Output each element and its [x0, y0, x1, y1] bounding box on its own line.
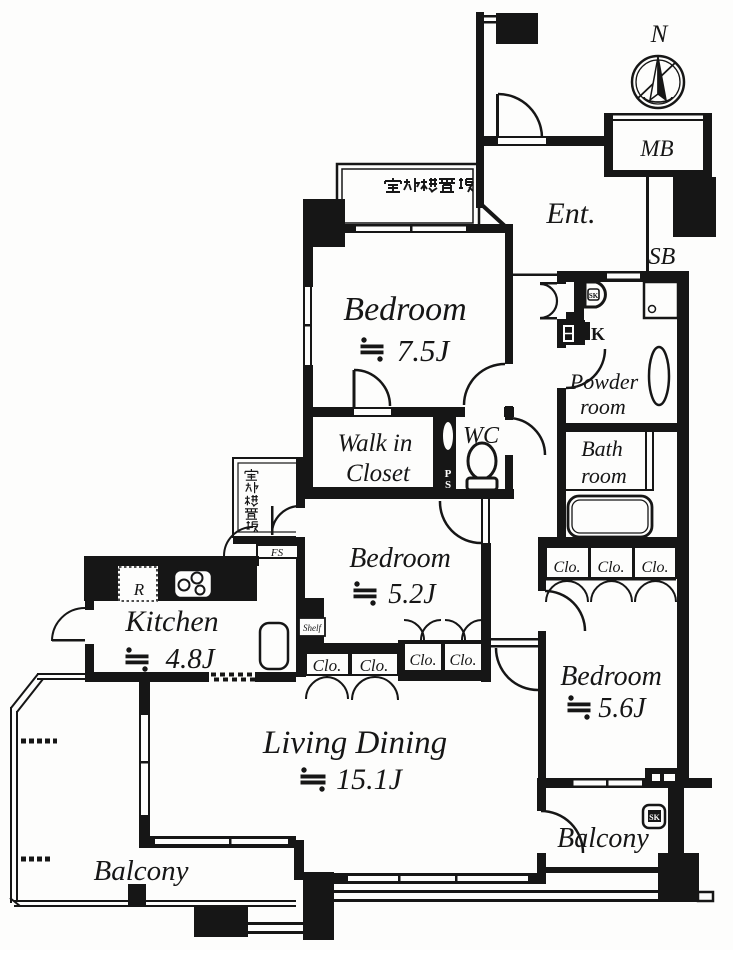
svg-text:Clo.: Clo.	[313, 656, 342, 675]
svg-text:Balcony: Balcony	[557, 823, 649, 854]
svg-text:Clo.: Clo.	[597, 559, 624, 576]
svg-text:room: room	[580, 394, 626, 419]
svg-text:SB: SB	[649, 244, 676, 270]
svg-text:Bedroom: Bedroom	[560, 661, 662, 692]
svg-text:5.2J: 5.2J	[388, 579, 437, 610]
svg-text:Clo.: Clo.	[553, 559, 580, 576]
svg-text:room: room	[581, 463, 627, 488]
svg-text:Powder: Powder	[569, 369, 639, 394]
svg-text:Kitchen: Kitchen	[124, 605, 218, 638]
svg-text:Shelf: Shelf	[303, 623, 322, 633]
svg-text:Walk in: Walk in	[338, 430, 413, 457]
svg-text:Bedroom: Bedroom	[349, 543, 451, 574]
svg-text:Clo.: Clo.	[641, 559, 668, 576]
svg-text:Clo.: Clo.	[409, 652, 436, 669]
svg-text:Bedroom: Bedroom	[343, 291, 466, 328]
svg-text:FS: FS	[270, 547, 284, 559]
svg-text:SK: SK	[649, 813, 660, 822]
svg-text:Clo.: Clo.	[360, 656, 389, 675]
svg-text:7.5J: 7.5J	[397, 333, 451, 368]
svg-text:5.6J: 5.6J	[598, 693, 647, 724]
svg-text:Ent.: Ent.	[545, 197, 595, 230]
svg-text:Living Dining: Living Dining	[262, 725, 447, 761]
svg-text:15.1J: 15.1J	[336, 763, 404, 796]
svg-text:Balcony: Balcony	[93, 855, 188, 887]
svg-text:Closet: Closet	[346, 460, 411, 487]
svg-text:Clo.: Clo.	[449, 652, 476, 669]
svg-text:R: R	[133, 580, 145, 599]
svg-text:MB: MB	[639, 136, 673, 161]
svg-text:SK: SK	[589, 292, 599, 300]
svg-text:4.8J: 4.8J	[165, 643, 215, 675]
svg-text:K: K	[591, 324, 605, 344]
svg-text:N: N	[650, 21, 669, 48]
svg-text:Bath: Bath	[581, 436, 623, 461]
